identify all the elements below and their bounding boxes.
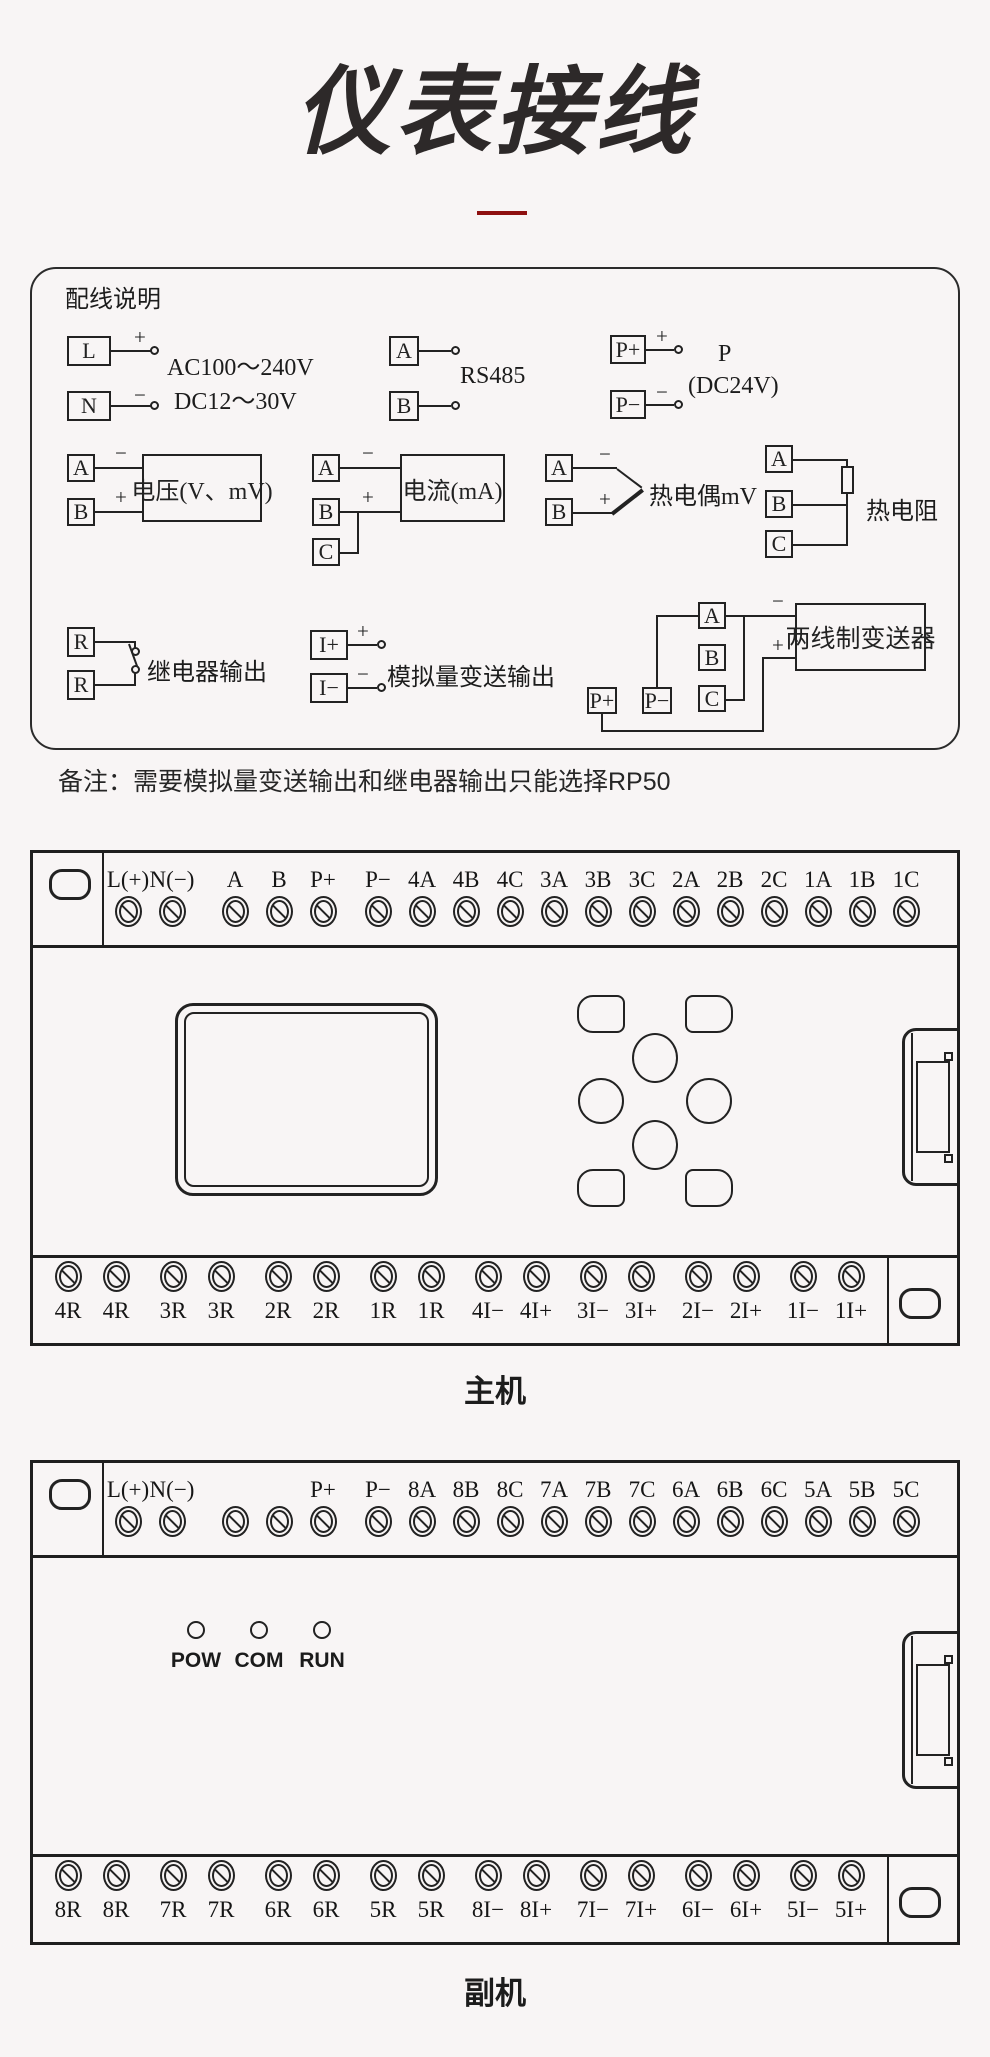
terminal-label: 5R	[418, 1896, 445, 1924]
terminal-P−: P−	[356, 866, 400, 927]
minus-sign: −	[772, 591, 784, 612]
p-label: P	[718, 341, 731, 368]
wire	[762, 657, 764, 732]
screw-terminal-icon	[475, 1261, 502, 1292]
terminal-L(+): L(+)	[106, 866, 150, 927]
terminal-label: 4R	[103, 1297, 130, 1325]
terminal-label: 1A	[804, 866, 832, 894]
plus-sign: +	[115, 487, 127, 508]
key-button-left[interactable]	[578, 1078, 624, 1124]
terminal-2R: 2R	[254, 1261, 302, 1325]
plus-sign: +	[772, 635, 784, 656]
terminal-5B: 5B	[840, 1476, 884, 1537]
terminal-label: 3A	[540, 866, 568, 894]
terminal-1I+: 1I+	[827, 1261, 875, 1325]
terminal-box-L: L	[67, 336, 111, 366]
screw-terminal-icon	[761, 896, 788, 927]
screw-terminal-icon	[453, 896, 480, 927]
terminal-label: 7R	[208, 1896, 235, 1924]
wire	[656, 615, 698, 617]
terminal-label: P+	[310, 1476, 336, 1504]
screw-terminal-icon	[313, 1860, 340, 1891]
screw-terminal-icon	[629, 1506, 656, 1537]
key-button-up[interactable]	[632, 1033, 678, 1083]
wire	[419, 405, 451, 407]
screw-terminal-icon	[55, 1261, 82, 1292]
wire	[95, 467, 142, 469]
plus-sign: +	[357, 621, 369, 642]
screw-terminal-icon	[418, 1261, 445, 1292]
key-button-top-left[interactable]	[577, 995, 625, 1033]
mounting-hole	[49, 1479, 91, 1510]
terminal-box-I-minus: I−	[310, 673, 348, 703]
terminal-label: P+	[310, 866, 336, 894]
key-button-right[interactable]	[686, 1078, 732, 1124]
screw-terminal-icon	[629, 896, 656, 927]
led-indicator-icon	[187, 1621, 205, 1639]
power-range-dc: DC12～30V	[174, 381, 297, 416]
screw-terminal-icon	[115, 1506, 142, 1537]
screw-terminal-icon	[365, 896, 392, 927]
terminal-label: 6C	[761, 1476, 788, 1504]
terminal-label: 3R	[160, 1297, 187, 1325]
terminal-label: 6R	[265, 1896, 292, 1924]
sub-top-terminal-row: L(+)N(−)P+P−8A8B8C7A7B7C6A6B6C5A5B5C	[106, 1476, 928, 1537]
terminal-3I−: 3I−	[569, 1261, 617, 1325]
terminal-5I−: 5I−	[779, 1860, 827, 1924]
terminal-box-C: C	[698, 685, 726, 712]
screw-terminal-icon	[370, 1860, 397, 1891]
minus-sign: −	[115, 443, 127, 464]
terminal-label: 8R	[103, 1896, 130, 1924]
terminal-blank	[213, 1476, 257, 1537]
terminal-8R: 8R	[44, 1860, 92, 1924]
terminal-box-A: A	[765, 445, 793, 473]
page-title: 仪表接线	[0, 34, 990, 173]
wire	[357, 511, 359, 554]
screw-terminal-icon	[541, 896, 568, 927]
terminal-1A: 1A	[796, 866, 840, 927]
screw-terminal-icon	[103, 1860, 130, 1891]
screw-terminal-icon	[310, 896, 337, 927]
note-text: 备注：需要模拟量变送输出和继电器输出只能选择RP50	[58, 762, 671, 798]
screw-terminal-icon	[585, 1506, 612, 1537]
terminal-box-C: C	[765, 530, 793, 558]
terminal-label: 5I−	[787, 1896, 819, 1924]
terminal-label: 8I+	[520, 1896, 552, 1924]
terminal-7R: 7R	[197, 1860, 245, 1924]
terminal-6R: 6R	[254, 1860, 302, 1924]
screw-terminal-icon	[673, 1506, 700, 1537]
terminal-label: 2R	[265, 1297, 292, 1325]
wire	[340, 467, 400, 469]
terminal-box-R: R	[67, 670, 95, 700]
sub-bottom-terminal-row: 8R8R7R7R6R6R5R5R8I−8I+7I−7I+6I−6I+5I−5I+	[44, 1860, 875, 1924]
terminal-5I+: 5I+	[827, 1860, 875, 1924]
key-button-down[interactable]	[632, 1120, 678, 1170]
screw-terminal-icon	[761, 1506, 788, 1537]
terminal-P−: P−	[356, 1476, 400, 1537]
strip-divider	[887, 1258, 889, 1343]
wire	[134, 673, 136, 685]
minus-sign: −	[599, 444, 611, 465]
led-run: RUN	[294, 1621, 350, 1673]
terminal-2A: 2A	[664, 866, 708, 927]
terminal-4I−: 4I−	[464, 1261, 512, 1325]
terminal-label: N(−)	[150, 1476, 195, 1504]
terminal-label: A	[227, 866, 244, 894]
screw-terminal-icon	[453, 1506, 480, 1537]
led-label: RUN	[299, 1649, 345, 1673]
terminal-7A: 7A	[532, 1476, 576, 1537]
terminal-6C: 6C	[752, 1476, 796, 1537]
terminal-box-P-minus: P−	[642, 687, 672, 714]
mounting-hole	[899, 1887, 941, 1918]
terminal-label: 4R	[55, 1297, 82, 1325]
strip-divider	[102, 853, 104, 945]
wire	[762, 657, 795, 659]
terminal-label: L(+)	[107, 866, 149, 894]
connector-lip	[911, 1636, 913, 1784]
main-top-terminal-strip: L(+)N(−)ABP+P−4A4B4C3A3B3C2A2B2C1A1B1C	[33, 853, 957, 948]
screw-terminal-icon	[208, 1860, 235, 1891]
wire-end-node	[377, 683, 386, 692]
terminal-label: 8A	[408, 1476, 436, 1504]
terminal-L(+): L(+)	[106, 1476, 150, 1537]
connector-slot	[916, 1664, 950, 1756]
wire	[743, 615, 745, 701]
terminal-3A: 3A	[532, 866, 576, 927]
mounting-hole	[49, 869, 91, 900]
led-indicator-icon	[313, 1621, 331, 1639]
terminal-8I−: 8I−	[464, 1860, 512, 1924]
connector-tab	[944, 1655, 953, 1664]
screw-terminal-icon	[370, 1261, 397, 1292]
led-label: POW	[171, 1649, 221, 1673]
wire	[348, 687, 377, 689]
terminal-label: 6I+	[730, 1896, 762, 1924]
terminal-label: 4A	[408, 866, 436, 894]
plus-sign: +	[134, 327, 146, 348]
terminal-label: 7C	[629, 1476, 656, 1504]
screw-terminal-icon	[103, 1261, 130, 1292]
rtd-resistor	[841, 466, 854, 494]
key-button-bottom-right[interactable]	[685, 1169, 733, 1207]
screw-terminal-icon	[523, 1860, 550, 1891]
screw-terminal-icon	[160, 1860, 187, 1891]
screw-terminal-icon	[497, 1506, 524, 1537]
wire	[601, 714, 603, 732]
terminal-4R: 4R	[92, 1261, 140, 1325]
terminal-label: 7R	[160, 1896, 187, 1924]
terminal-5A: 5A	[796, 1476, 840, 1537]
wire	[793, 544, 848, 546]
terminal-label: 8B	[453, 1476, 480, 1504]
screw-terminal-icon	[717, 1506, 744, 1537]
led-label: COM	[235, 1649, 284, 1673]
terminal-label: 6B	[717, 1476, 744, 1504]
terminal-2I−: 2I−	[674, 1261, 722, 1325]
sub-unit-label: 副机	[0, 1968, 990, 2013]
minus-sign: −	[357, 664, 369, 685]
screw-terminal-icon	[160, 1261, 187, 1292]
main-top-terminal-row: L(+)N(−)ABP+P−4A4B4C3A3B3C2A2B2C1A1B1C	[106, 866, 928, 927]
terminal-1R: 1R	[359, 1261, 407, 1325]
terminal-2R: 2R	[302, 1261, 350, 1325]
terminal-6R: 6R	[302, 1860, 350, 1924]
screw-terminal-icon	[266, 896, 293, 927]
terminal-label: 1B	[849, 866, 876, 894]
sub-bottom-terminal-strip: 8R8R7R7R6R6R5R5R8I−8I+7I−7I+6I−6I+5I−5I+	[33, 1854, 957, 1942]
plus-sign: +	[599, 489, 611, 510]
connector-tab	[944, 1154, 953, 1163]
wiring-instruction-box: 配线说明 L N + − AC100～240V DC12～30V A B RS4…	[30, 267, 960, 750]
terminal-label: 1R	[370, 1297, 397, 1325]
lcd-display	[175, 1003, 438, 1196]
terminal-box-P-plus: P+	[587, 687, 617, 714]
power-range-ac: AC100～240V	[167, 347, 314, 382]
terminal-N(−): N(−)	[150, 866, 194, 927]
terminal-label: 4C	[497, 866, 524, 894]
lcd-display-inner	[184, 1012, 429, 1187]
terminal-5C: 5C	[884, 1476, 928, 1537]
terminal-label: P−	[365, 866, 391, 894]
rtd-label: 热电阻	[866, 491, 938, 526]
screw-terminal-icon	[208, 1261, 235, 1292]
screw-terminal-icon	[265, 1860, 292, 1891]
screw-terminal-icon	[580, 1860, 607, 1891]
strip-divider	[887, 1857, 889, 1942]
terminal-2C: 2C	[752, 866, 796, 927]
screw-terminal-icon	[733, 1261, 760, 1292]
screw-terminal-icon	[685, 1261, 712, 1292]
terminal-box-A: A	[389, 336, 419, 366]
mounting-hole	[899, 1288, 941, 1319]
led-com: COM	[231, 1621, 287, 1673]
side-connector-port	[902, 1028, 960, 1186]
terminal-5R: 5R	[407, 1860, 455, 1924]
terminal-label: 2I+	[730, 1297, 762, 1325]
terminal-label: 3I−	[577, 1297, 609, 1325]
wire	[656, 615, 658, 687]
strip-divider	[102, 1463, 104, 1555]
terminal-8R: 8R	[92, 1860, 140, 1924]
terminal-8A: 8A	[400, 1476, 444, 1537]
wire-end-node	[451, 346, 460, 355]
terminal-label: 5I+	[835, 1896, 867, 1924]
terminal-4A: 4A	[400, 866, 444, 927]
terminal-box-A: A	[67, 454, 95, 482]
wire	[573, 467, 617, 469]
terminal-1R: 1R	[407, 1261, 455, 1325]
terminal-label: 2A	[672, 866, 700, 894]
terminal-label: 6A	[672, 1476, 700, 1504]
screw-terminal-icon	[409, 896, 436, 927]
connector-lip	[911, 1033, 913, 1181]
terminal-label: 2B	[717, 866, 744, 894]
terminal-label: 1I−	[787, 1297, 819, 1325]
terminal-P+: P+	[301, 1476, 345, 1537]
terminal-box-B: B	[389, 391, 419, 421]
plus-sign: +	[656, 326, 668, 347]
main-bottom-terminal-strip: 4R4R3R3R2R2R1R1R4I−4I+3I−3I+2I−2I+1I−1I+	[33, 1255, 957, 1343]
terminal-7C: 7C	[620, 1476, 664, 1537]
main-unit-panel: L(+)N(−)ABP+P−4A4B4C3A3B3C2A2B2C1A1B1C 4…	[30, 850, 960, 1346]
wire-end-node	[674, 400, 683, 409]
terminal-label: 5C	[893, 1476, 920, 1504]
terminal-label: P−	[365, 1476, 391, 1504]
screw-terminal-icon	[628, 1261, 655, 1292]
wire	[340, 511, 400, 513]
screw-terminal-icon	[115, 896, 142, 927]
screw-terminal-icon	[733, 1860, 760, 1891]
connector-tab	[944, 1052, 953, 1061]
screw-terminal-icon	[265, 1261, 292, 1292]
terminal-1C: 1C	[884, 866, 928, 927]
terminal-2I+: 2I+	[722, 1261, 770, 1325]
screw-terminal-icon	[805, 896, 832, 927]
screw-terminal-icon	[849, 1506, 876, 1537]
led-indicator-icon	[250, 1621, 268, 1639]
terminal-box-N: N	[67, 391, 111, 421]
sub-unit-panel: L(+)N(−)P+P−8A8B8C7A7B7C6A6B6C5A5B5C POW…	[30, 1460, 960, 1945]
terminal-box-B: B	[698, 644, 726, 671]
connector-tab	[944, 1757, 953, 1766]
screw-terminal-icon	[585, 896, 612, 927]
wire	[111, 350, 151, 352]
terminal-label: 7I−	[577, 1896, 609, 1924]
wiring-box-heading: 配线说明	[65, 279, 161, 314]
screw-terminal-icon	[838, 1261, 865, 1292]
wire-end-node	[150, 346, 159, 355]
terminal-label: L(+)	[107, 1476, 149, 1504]
wire	[646, 349, 674, 351]
transmitter-box: 两线制变送器	[795, 603, 926, 671]
wire	[646, 404, 674, 406]
terminal-box-P-minus: P−	[610, 390, 646, 419]
screw-terminal-icon	[523, 1261, 550, 1292]
terminal-label: 5B	[849, 1476, 876, 1504]
wire	[419, 350, 451, 352]
terminal-A: A	[213, 866, 257, 927]
status-led-row: POWCOMRUN	[168, 1621, 350, 1673]
terminal-box-A: A	[312, 454, 340, 482]
screw-terminal-icon	[418, 1860, 445, 1891]
key-button-bottom-left[interactable]	[577, 1169, 625, 1207]
terminal-1B: 1B	[840, 866, 884, 927]
terminal-label: 1C	[893, 866, 920, 894]
screw-terminal-icon	[580, 1261, 607, 1292]
wire	[573, 512, 612, 514]
side-connector-port	[902, 1631, 960, 1789]
terminal-label: 8R	[55, 1896, 82, 1924]
screw-terminal-icon	[266, 1506, 293, 1537]
screw-terminal-icon	[409, 1506, 436, 1537]
terminal-7I−: 7I−	[569, 1860, 617, 1924]
screw-terminal-icon	[159, 1506, 186, 1537]
screw-terminal-icon	[310, 1506, 337, 1537]
terminal-3C: 3C	[620, 866, 664, 927]
led-pow: POW	[168, 1621, 224, 1673]
terminal-box-C: C	[312, 538, 340, 566]
thermocouple-wire	[616, 468, 642, 488]
terminal-label: 3R	[208, 1297, 235, 1325]
terminal-3I+: 3I+	[617, 1261, 665, 1325]
terminal-4R: 4R	[44, 1261, 92, 1325]
terminal-box-B: B	[312, 498, 340, 526]
terminal-label: 5R	[370, 1896, 397, 1924]
screw-terminal-icon	[893, 1506, 920, 1537]
terminal-6B: 6B	[708, 1476, 752, 1537]
terminal-label: 6I−	[682, 1896, 714, 1924]
terminal-label: 8C	[497, 1476, 524, 1504]
terminal-box-A: A	[698, 602, 726, 629]
terminal-4C: 4C	[488, 866, 532, 927]
terminal-box-R: R	[67, 627, 95, 657]
wire-end-node	[674, 345, 683, 354]
terminal-label: 3C	[629, 866, 656, 894]
terminal-8C: 8C	[488, 1476, 532, 1537]
sub-top-terminal-strip: L(+)N(−)P+P−8A8B8C7A7B7C6A6B6C5A5B5C	[33, 1463, 957, 1558]
screw-terminal-icon	[717, 896, 744, 927]
terminal-label: 4I−	[472, 1297, 504, 1325]
wire	[95, 684, 136, 686]
terminal-N(−): N(−)	[150, 1476, 194, 1537]
wire	[348, 644, 377, 646]
screw-terminal-icon	[313, 1261, 340, 1292]
terminal-6I+: 6I+	[722, 1860, 770, 1924]
terminal-label: 2I−	[682, 1297, 714, 1325]
terminal-label: 8I−	[472, 1896, 504, 1924]
terminal-label: 7B	[585, 1476, 612, 1504]
wire	[95, 511, 142, 513]
dc24v-label: (DC24V)	[688, 373, 779, 400]
title-divider	[477, 211, 527, 215]
terminal-label: 5A	[804, 1476, 832, 1504]
screw-terminal-icon	[893, 896, 920, 927]
terminal-6I−: 6I−	[674, 1860, 722, 1924]
screw-terminal-icon	[222, 1506, 249, 1537]
terminal-label: 3I+	[625, 1297, 657, 1325]
terminal-label: 3B	[585, 866, 612, 894]
screw-terminal-icon	[475, 1860, 502, 1891]
terminal-box-P-plus: P+	[610, 335, 646, 364]
terminal-3B: 3B	[576, 866, 620, 927]
terminal-1I−: 1I−	[779, 1261, 827, 1325]
terminal-label: 2C	[761, 866, 788, 894]
terminal-label: 1R	[418, 1297, 445, 1325]
voltage-input-box: 电压(V、mV)	[142, 454, 262, 522]
terminal-P+: P+	[301, 866, 345, 927]
wire-end-node	[451, 401, 460, 410]
terminal-B: B	[257, 866, 301, 927]
screw-terminal-icon	[159, 896, 186, 927]
screw-terminal-icon	[685, 1860, 712, 1891]
terminal-6A: 6A	[664, 1476, 708, 1537]
key-button-top-right[interactable]	[685, 995, 733, 1033]
terminal-label: 4I+	[520, 1297, 552, 1325]
terminal-7I+: 7I+	[617, 1860, 665, 1924]
minus-sign: −	[134, 385, 146, 406]
terminal-box-B: B	[545, 498, 573, 526]
plus-sign: +	[362, 487, 374, 508]
main-unit-label: 主机	[0, 1366, 990, 1411]
terminal-label: 1I+	[835, 1297, 867, 1325]
screw-terminal-icon	[55, 1860, 82, 1891]
terminal-3R: 3R	[149, 1261, 197, 1325]
rs485-label: RS485	[460, 363, 525, 390]
terminal-label: 7A	[540, 1476, 568, 1504]
